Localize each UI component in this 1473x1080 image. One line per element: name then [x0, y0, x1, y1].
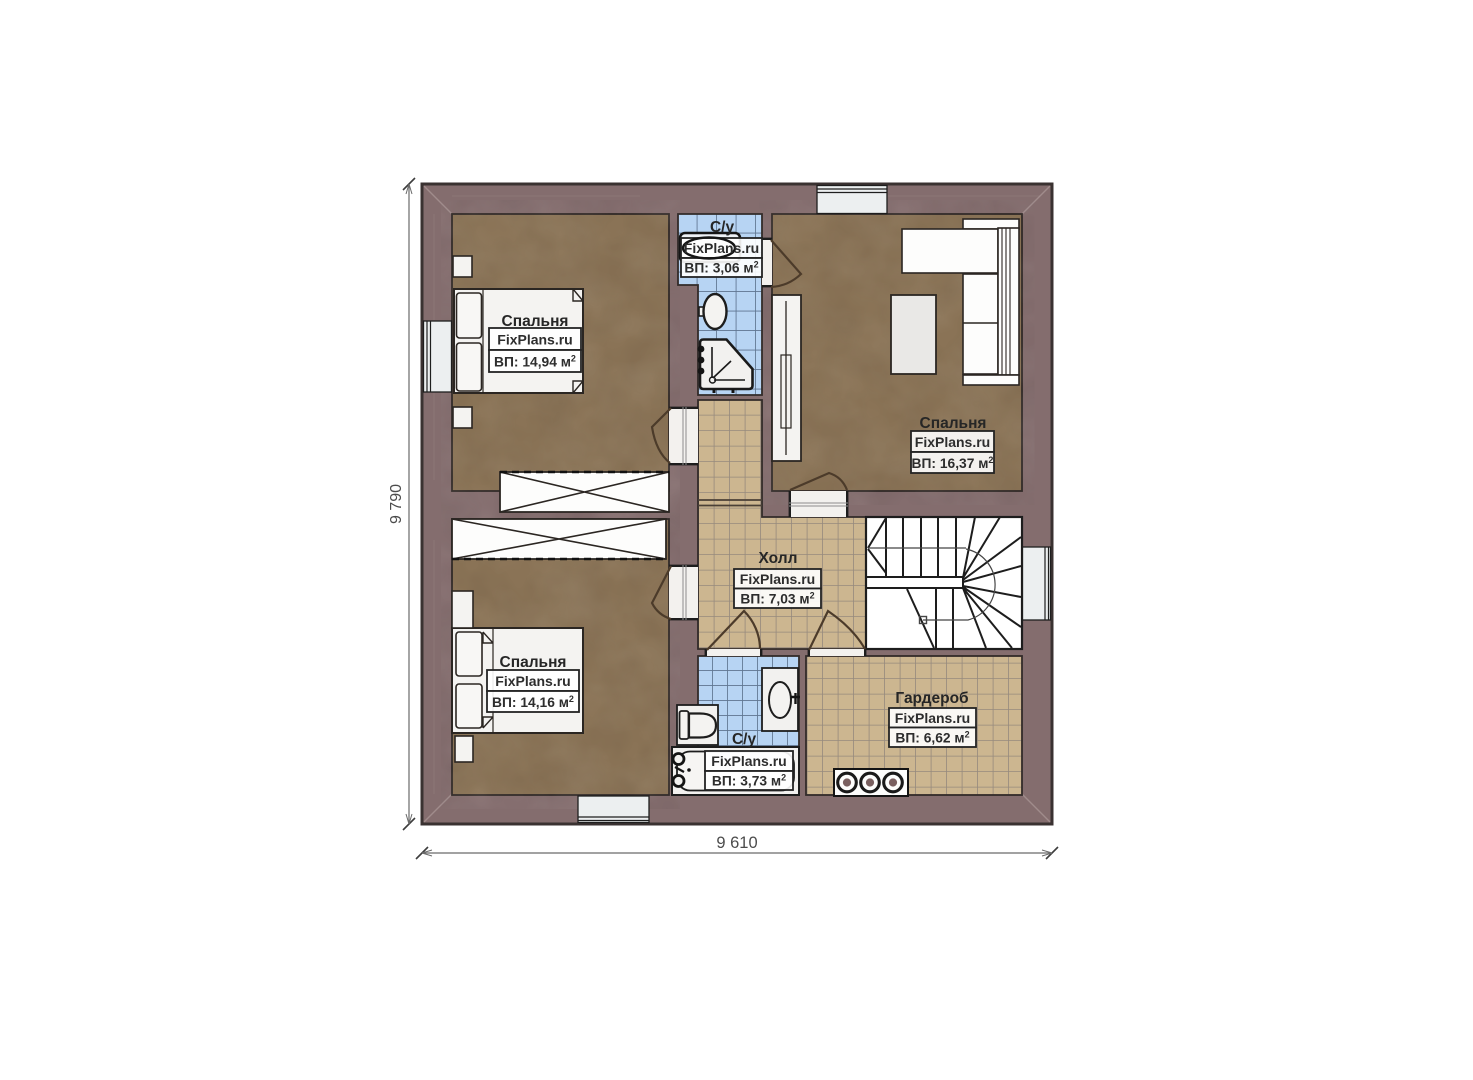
svg-text:FixPlans.ru: FixPlans.ru	[495, 673, 570, 689]
svg-text:ВП: 16,37 м2: ВП: 16,37 м2	[912, 455, 994, 471]
svg-text:FixPlans.ru: FixPlans.ru	[895, 710, 970, 726]
svg-text:FixPlans.ru: FixPlans.ru	[915, 434, 990, 450]
svg-text:ВП: 7,03 м2: ВП: 7,03 м2	[740, 591, 814, 607]
svg-text:FixPlans.ru: FixPlans.ru	[497, 332, 572, 348]
svg-text:FixPlans.ru: FixPlans.ru	[711, 753, 786, 769]
svg-text:FixPlans.ru: FixPlans.ru	[740, 571, 815, 587]
svg-text:Спальня: Спальня	[500, 654, 567, 671]
svg-text:ВП: 3,06 м2: ВП: 3,06 м2	[684, 260, 758, 276]
svg-text:С/у: С/у	[710, 219, 735, 236]
svg-text:ВП: 14,94 м2: ВП: 14,94 м2	[494, 354, 576, 370]
svg-text:9 790: 9 790	[388, 484, 405, 524]
svg-text:9 610: 9 610	[716, 834, 757, 852]
svg-text:ВП: 6,62 м2: ВП: 6,62 м2	[895, 730, 969, 746]
svg-text:С/у: С/у	[732, 731, 757, 748]
svg-text:ВП: 3,73 м2: ВП: 3,73 м2	[712, 773, 786, 789]
svg-text:FixPlans.ru: FixPlans.ru	[684, 240, 759, 256]
svg-text:Гардероб: Гардероб	[895, 690, 968, 707]
svg-text:ВП: 14,16 м2: ВП: 14,16 м2	[492, 694, 574, 710]
svg-text:Спальня: Спальня	[920, 415, 987, 432]
svg-text:Холл: Холл	[759, 550, 798, 567]
